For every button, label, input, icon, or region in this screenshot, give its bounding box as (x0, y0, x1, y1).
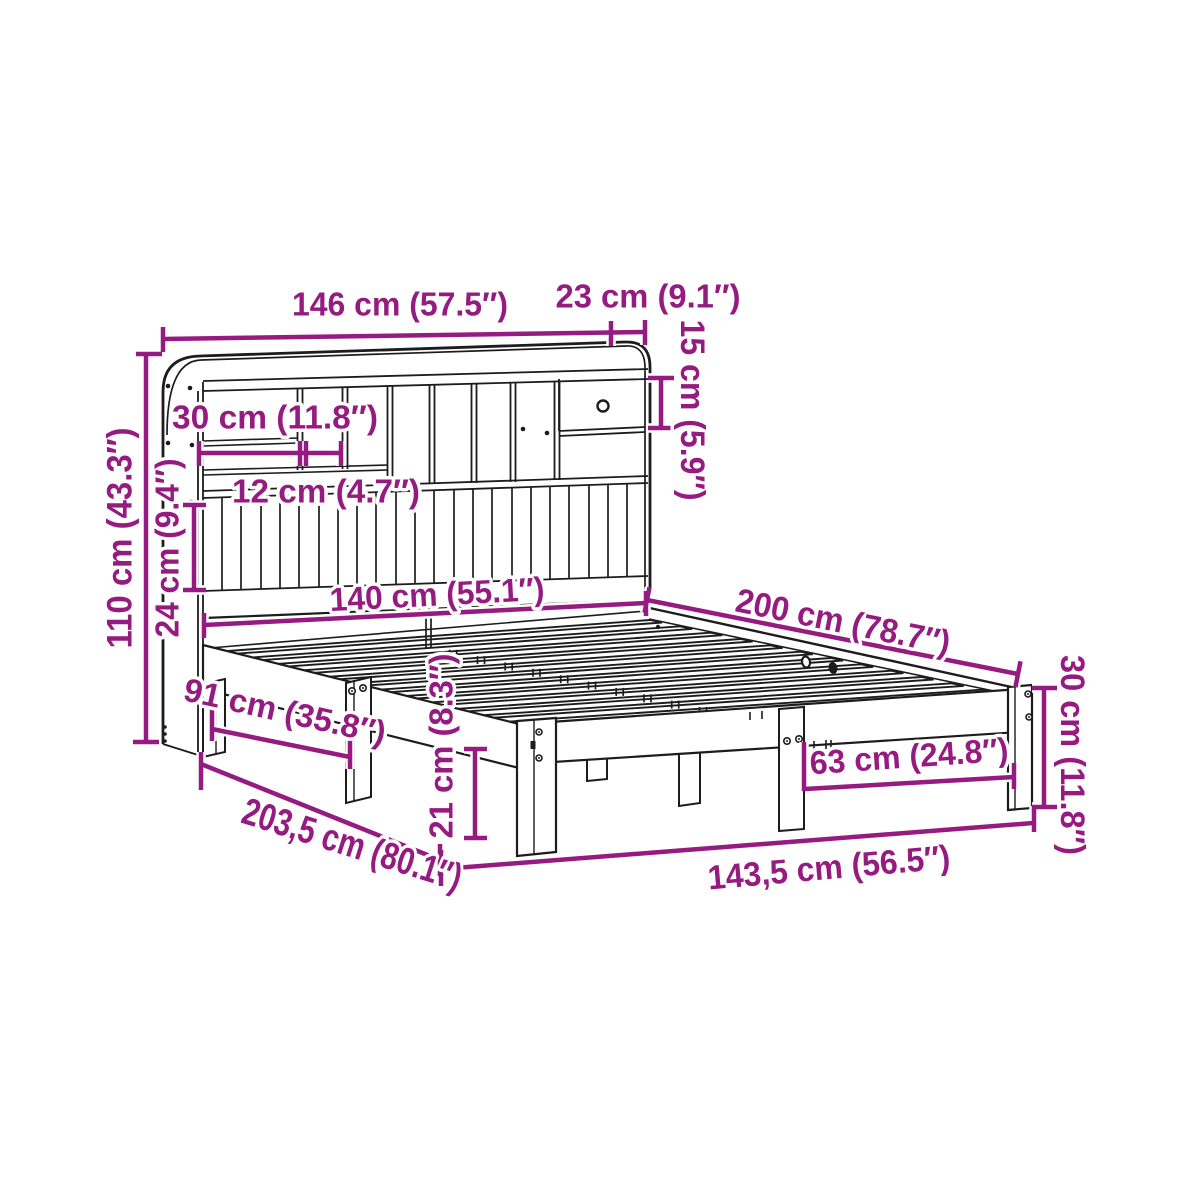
svg-text:15 cm (5.9″): 15 cm (5.9″) (673, 320, 711, 501)
svg-text:146 cm (57.5″): 146 cm (57.5″) (292, 286, 508, 323)
svg-text:30 cm (11.8″): 30 cm (11.8″) (172, 399, 378, 436)
svg-text:23 cm (9.1″): 23 cm (9.1″) (556, 278, 741, 315)
svg-text:30 cm (11.8″): 30 cm (11.8″) (1053, 655, 1091, 855)
svg-text:21 cm (8.3″): 21 cm (8.3″) (423, 654, 460, 839)
svg-text:110 cm (43.3″): 110 cm (43.3″) (101, 428, 140, 649)
svg-text:12 cm (4.7″): 12 cm (4.7″) (232, 473, 420, 510)
svg-text:24 cm (9.4″): 24 cm (9.4″) (149, 459, 186, 638)
